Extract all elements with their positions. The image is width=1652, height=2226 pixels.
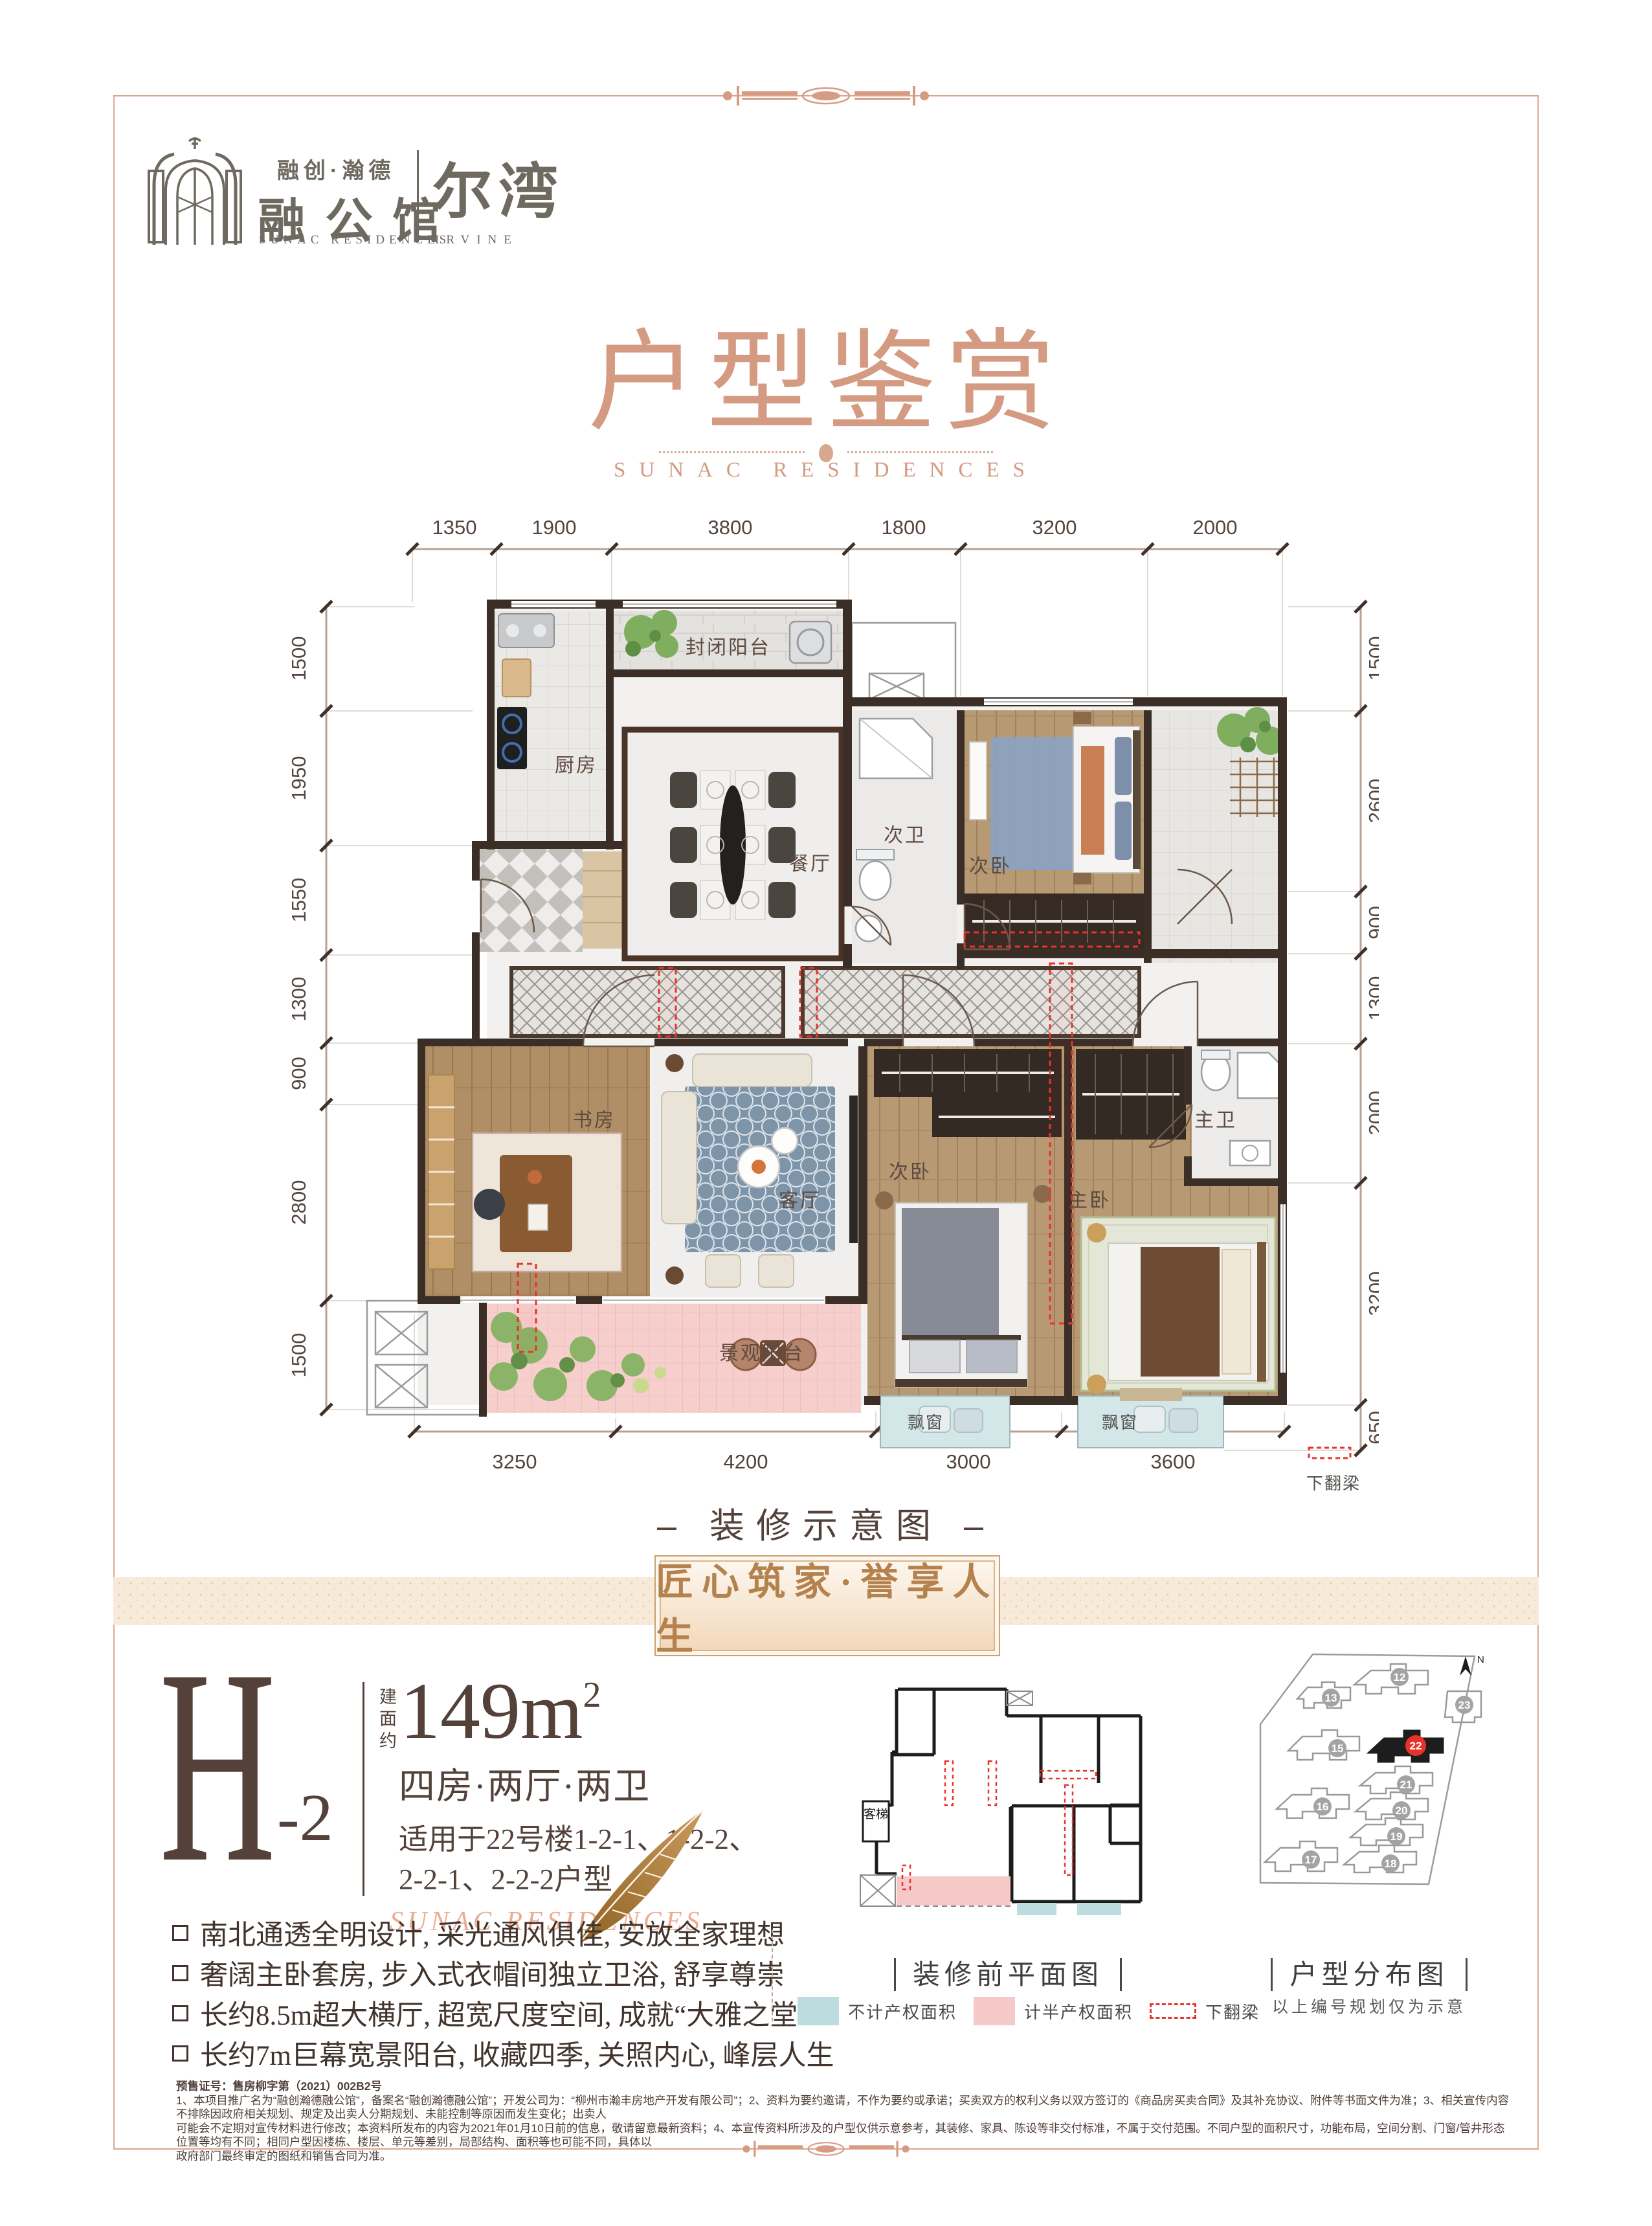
fine-print: 预售证号：售房柳字第（2021）002B2号 1、本项目推广名为“融创瀚德融公馆…	[176, 2080, 1512, 2163]
svg-text:1500: 1500	[287, 636, 310, 681]
dim-labels-left: 1500 1950 1550 1300 900 2800 1500	[287, 636, 310, 1378]
bullet-square-icon	[172, 1965, 188, 1981]
brand-name-small: 融创·瀚德	[277, 153, 395, 185]
building-badge: 19	[1387, 1827, 1405, 1845]
building-badge: 20	[1392, 1801, 1411, 1819]
svg-text:餐厅: 餐厅	[789, 853, 832, 875]
feature-text: 南北通透全明设计, 采光通风俱佳, 安放全家理想	[200, 1913, 785, 1953]
svg-text:900: 900	[287, 1057, 310, 1090]
svg-text:飘窗: 飘窗	[1102, 1413, 1138, 1432]
bullet-square-icon	[172, 2005, 188, 2021]
pre-plan-caption: 装修前平面图	[875, 1953, 1141, 1992]
svg-text:1300: 1300	[1365, 976, 1379, 1021]
floor-plan-caption: – 装修示意图 –	[0, 1497, 1652, 1548]
svg-text:22: 22	[1410, 1740, 1422, 1752]
project-name-cn: 尔湾	[432, 144, 564, 230]
svg-text:4200: 4200	[724, 1450, 768, 1473]
floor-plan: 1350 1900 3800 1800 3200 2000 1500 1950 …	[278, 479, 1379, 1528]
svg-text:13: 13	[1325, 1692, 1337, 1704]
section-dashed-divider	[772, 1929, 773, 2021]
fine-print-line: 可能会不定期对宣传材料进行修改；本资料所发布的内容为2021年01月10日前的信…	[176, 2122, 1512, 2150]
svg-text:900: 900	[1365, 906, 1379, 939]
svg-text:1800: 1800	[882, 516, 926, 539]
area-prefix: 建面约	[374, 1687, 399, 1753]
svg-text:17: 17	[1305, 1854, 1317, 1866]
gate-logo-icon	[146, 135, 243, 249]
svg-text:2800: 2800	[287, 1180, 310, 1225]
area-superscript: 2	[583, 1675, 601, 1715]
svg-text:3000: 3000	[946, 1450, 991, 1473]
bullet-square-icon	[172, 2045, 188, 2062]
building-badge: 23	[1455, 1696, 1473, 1714]
svg-text:19: 19	[1390, 1830, 1403, 1843]
site-map: 12 13 23 15 22 21 16 20 19 17 18 N	[1230, 1632, 1515, 1955]
svg-text:厨房: 厨房	[555, 755, 597, 776]
feature-text: 长约7m巨幕宽景阳台, 收藏四季, 关照内心, 峰层人生	[200, 2033, 834, 2073]
legend-swatch-pink	[974, 1997, 1015, 2025]
svg-text:1950: 1950	[287, 756, 310, 801]
legend-swatch-blue	[798, 1997, 839, 2025]
bullet-square-icon	[172, 1925, 188, 1941]
svg-text:主卫: 主卫	[1194, 1110, 1237, 1131]
feature-list: 南北通透全明设计, 采光通风俱佳, 安放全家理想 奢阔主卧套房, 步入式衣帽间独…	[172, 1913, 834, 2073]
brand-name-en: SUNAC RESIDENCES	[259, 233, 451, 247]
site-map-note: 以上编号规划仅为示意	[1249, 1994, 1489, 2018]
svg-text:1550: 1550	[287, 878, 310, 923]
svg-text:12: 12	[1394, 1671, 1406, 1683]
poster-page: 融创·瀚德 融公馆 SUNAC RESIDENCES 尔湾 IRVINE 户型鉴…	[0, 0, 1652, 2226]
building-badge: 12	[1390, 1668, 1409, 1686]
building-badge: 18	[1381, 1854, 1400, 1872]
svg-text:2000: 2000	[1365, 1091, 1379, 1136]
svg-text:1500: 1500	[287, 1333, 310, 1378]
legend-half-property: 计半产权面积	[1024, 1999, 1133, 2023]
banner-text: 匠心筑家·誉享人生	[656, 1551, 999, 1660]
feature-text: 长约8.5m超大横厅, 超宽尺度空间, 成就“大雅之堂”	[200, 1993, 810, 2033]
svg-text:1900: 1900	[532, 516, 577, 539]
title-dotted-left	[659, 451, 805, 453]
building-badge-highlight: 22	[1405, 1735, 1426, 1756]
title-dotted-right	[847, 451, 993, 453]
pre-decoration-plan: 客梯	[796, 1664, 1159, 1923]
svg-text:2600: 2600	[1365, 779, 1379, 824]
svg-text:下翻梁: 下翻梁	[1306, 1474, 1361, 1493]
building-badge: 13	[1322, 1689, 1340, 1707]
dim-labels-top: 1350 1900 3800 1800 3200 2000	[432, 516, 1238, 539]
svg-text:23: 23	[1458, 1699, 1471, 1711]
svg-text:18: 18	[1385, 1858, 1397, 1870]
svg-text:3200: 3200	[1032, 516, 1077, 539]
svg-text:3800: 3800	[708, 516, 753, 539]
site-map-caption: 户型分布图	[1249, 1953, 1489, 1992]
svg-text:次卧: 次卧	[969, 856, 1012, 877]
svg-text:封闭阳台: 封闭阳台	[686, 637, 771, 658]
fine-print-line: 1、本项目推广名为“融创瀚德融公馆”，备案名“融创瀚德融公馆”；开发公司为：“柳…	[176, 2094, 1512, 2122]
svg-text:2000: 2000	[1193, 516, 1238, 539]
svg-text:20: 20	[1396, 1804, 1408, 1817]
legend-no-property: 不计产权面积	[848, 1999, 957, 2023]
svg-text:景观阳台: 景观阳台	[719, 1343, 805, 1364]
svg-text:客厅: 客厅	[779, 1190, 821, 1211]
feature-item: 长约8.5m超大横厅, 超宽尺度空间, 成就“大雅之堂”	[172, 1993, 834, 2033]
building-badge: 16	[1313, 1797, 1332, 1816]
fine-print-license: 预售证号：售房柳字第（2021）002B2号	[176, 2080, 1512, 2094]
building-badge: 15	[1328, 1739, 1346, 1757]
legend-beam-icon	[1150, 2003, 1196, 2019]
svg-text:N: N	[1477, 1654, 1484, 1665]
svg-text:书房: 书房	[573, 1110, 616, 1131]
feature-item: 南北通透全明设计, 采光通风俱佳, 安放全家理想	[172, 1913, 834, 1953]
project-name-en: IRVINE	[435, 233, 519, 247]
svg-text:次卫: 次卫	[884, 825, 926, 846]
feature-text: 奢阔主卧套房, 步入式衣帽间独立卫浴, 舒享尊崇	[200, 1953, 785, 1993]
pre-plan-caption-text: 装修前平面图	[894, 1958, 1122, 1991]
logo-divider	[417, 150, 419, 234]
svg-text:650: 650	[1365, 1411, 1379, 1445]
svg-text:16: 16	[1317, 1801, 1329, 1813]
svg-text:3200: 3200	[1365, 1272, 1379, 1316]
unit-code-suffix: -2	[277, 1779, 333, 1856]
top-ornament-icon	[722, 82, 930, 109]
svg-text:1350: 1350	[432, 516, 477, 539]
svg-text:飘窗: 飘窗	[908, 1413, 944, 1432]
building-badge: 21	[1397, 1775, 1415, 1793]
svg-text:3600: 3600	[1151, 1450, 1196, 1473]
svg-text:1500: 1500	[1365, 636, 1379, 681]
area-value: 149m2	[400, 1665, 601, 1757]
svg-text:1300: 1300	[287, 977, 310, 1022]
banner: 匠心筑家·誉享人生	[654, 1555, 1000, 1656]
unit-code: H	[159, 1655, 276, 1878]
site-map-caption-text: 户型分布图	[1271, 1958, 1467, 1991]
unit-layout: 四房·两厅·两卫	[399, 1757, 651, 1810]
beam-legend: 下翻梁	[1306, 1448, 1361, 1493]
fine-print-line: 政府部门最终审定的图纸和销售合同为准。	[176, 2150, 1512, 2164]
svg-text:15: 15	[1332, 1742, 1344, 1755]
building-badge: 17	[1302, 1850, 1320, 1869]
plan-legend: 不计产权面积 计半产权面积 下翻梁	[798, 1997, 1277, 2025]
feature-item: 长约7m巨幕宽景阳台, 收藏四季, 关照内心, 峰层人生	[172, 2033, 834, 2073]
dim-labels-bottom: 3250 4200 3000 3600	[493, 1450, 1196, 1473]
svg-text:3250: 3250	[493, 1450, 537, 1473]
dim-labels-right: 1500 2600 900 1300 2000 3200 650	[1365, 636, 1379, 1445]
feature-item: 奢阔主卧套房, 步入式衣帽间独立卫浴, 舒享尊崇	[172, 1953, 834, 1993]
svg-text:主卧: 主卧	[1068, 1190, 1111, 1211]
svg-text:次卧: 次卧	[889, 1162, 932, 1183]
page-title: 户型鉴赏	[0, 293, 1652, 452]
svg-text:21: 21	[1400, 1779, 1412, 1791]
unit-divider	[363, 1682, 364, 1896]
elevator-label: 客梯	[864, 1807, 888, 1821]
area-number: 149m	[400, 1667, 583, 1755]
